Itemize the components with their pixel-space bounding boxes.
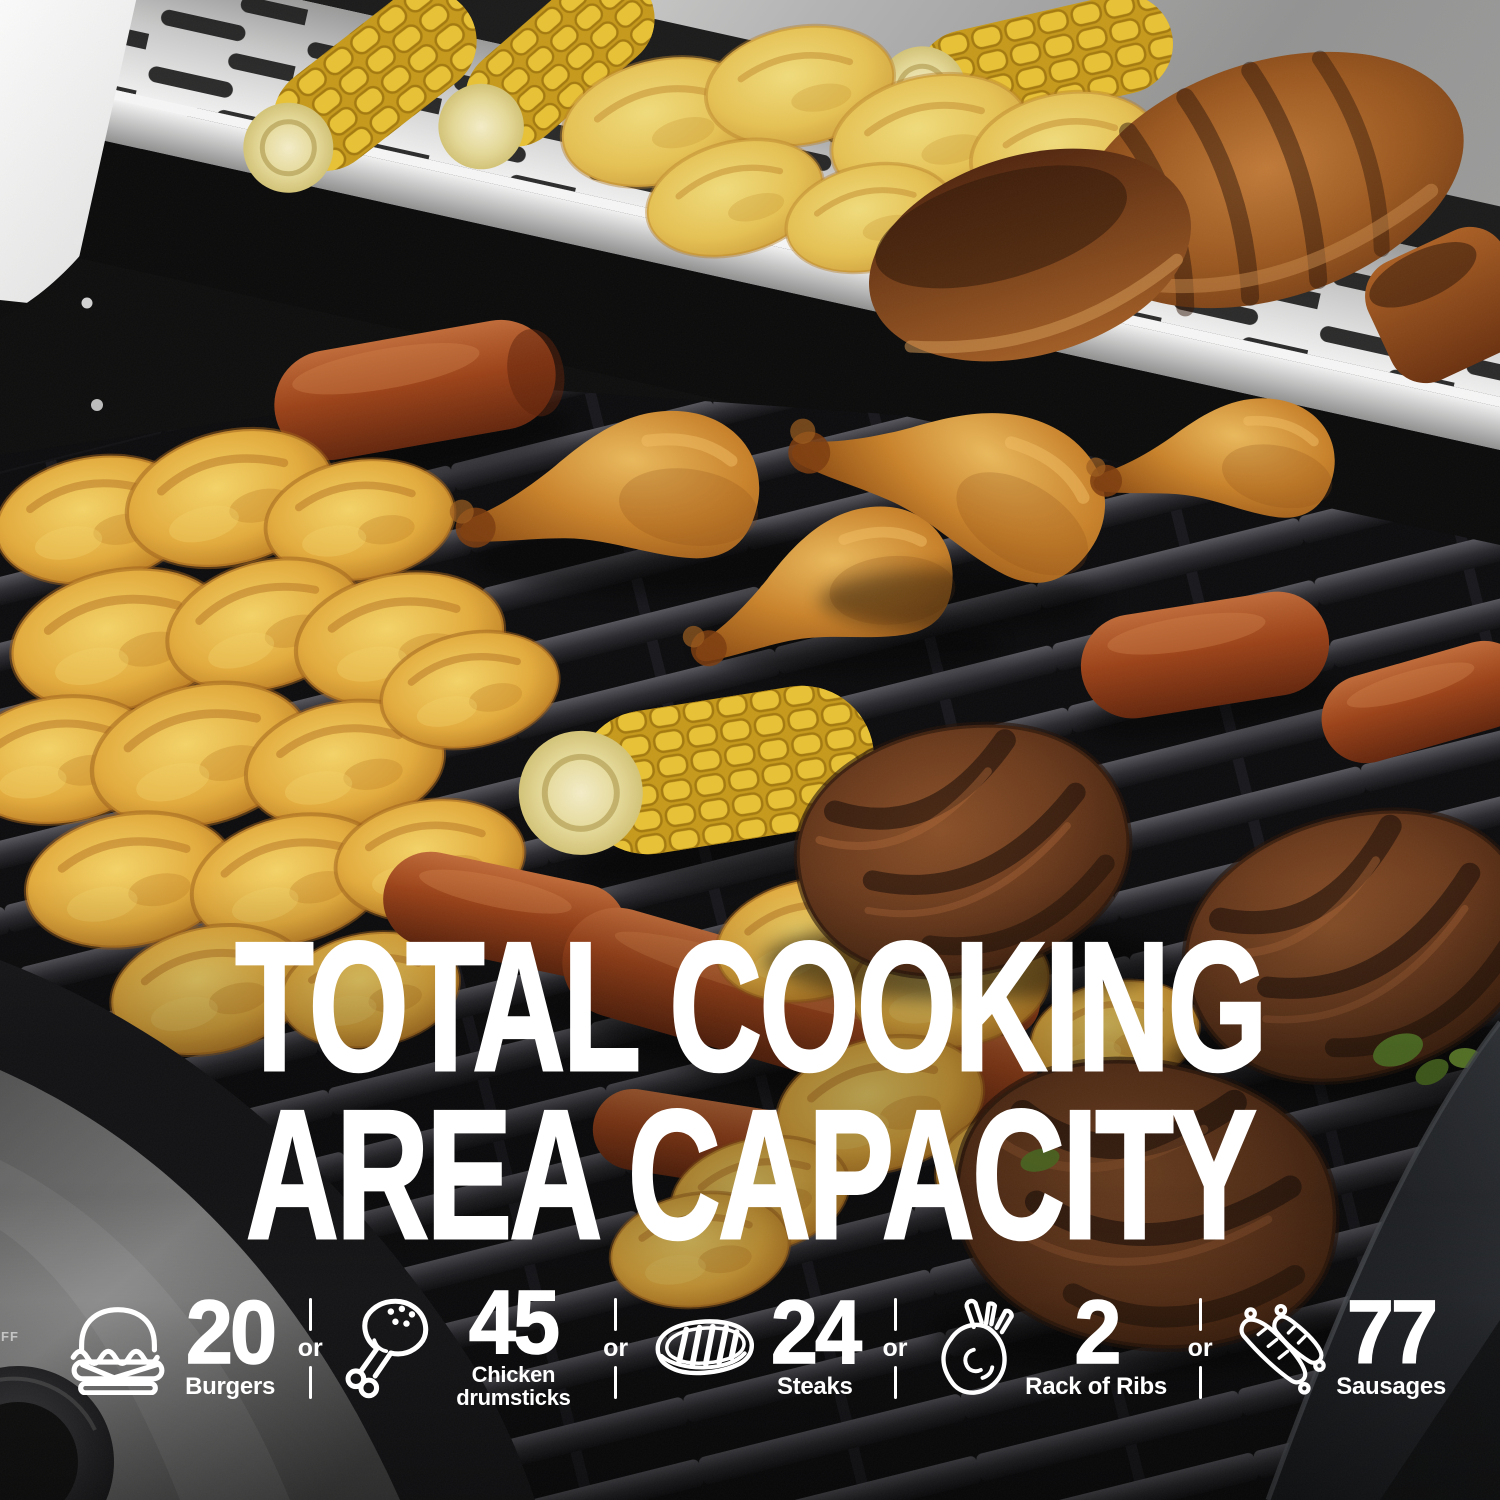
stat-value: 24 — [771, 1297, 859, 1371]
or-separator: or — [1188, 1298, 1213, 1399]
headline-line-2: AREA CAPACITY — [225, 1102, 1275, 1246]
product-infographic: FF TOTAL COOKING AREA CAPACITY 20 Burger… — [0, 0, 1500, 1500]
stat-text: 45 Chicken drumsticks — [444, 1287, 582, 1410]
drumstick-icon — [343, 1296, 435, 1399]
separator-line — [309, 1298, 312, 1331]
stat-sausages: 77 Sausages — [1233, 1297, 1446, 1399]
stat-burgers: 20 Burgers — [62, 1297, 277, 1399]
stat-text: 2 Rack of Ribs — [1025, 1297, 1167, 1399]
stat-value: 45 — [469, 1287, 557, 1361]
stat-value: 2 — [1074, 1297, 1118, 1371]
stat-steaks: 24 Steaks — [649, 1297, 862, 1399]
separator-text: or — [883, 1336, 908, 1361]
knob-panel-text: FF — [1, 1329, 19, 1344]
or-separator: or — [603, 1298, 628, 1399]
separator-line — [614, 1298, 617, 1331]
stat-value: 20 — [186, 1297, 274, 1371]
headline: TOTAL COOKING AREA CAPACITY — [0, 934, 1500, 1246]
or-separator: or — [883, 1298, 908, 1399]
stat-text: 77 Sausages — [1336, 1297, 1446, 1399]
separator-text: or — [298, 1336, 323, 1361]
separator-line — [1199, 1298, 1202, 1331]
sausages-icon — [1233, 1301, 1327, 1395]
stat-text: 24 Steaks — [768, 1297, 862, 1399]
separator-line — [894, 1298, 897, 1331]
separator-line — [894, 1366, 897, 1399]
burger-icon — [62, 1301, 174, 1395]
or-separator: or — [298, 1298, 323, 1399]
ribs-icon — [928, 1295, 1016, 1401]
headline-line-1: TOTAL COOKING — [225, 934, 1275, 1078]
separator-line — [614, 1366, 617, 1399]
stat-value: 77 — [1347, 1297, 1435, 1371]
capacity-stats-row: 20 Burgers or 45 — [62, 1286, 1446, 1410]
stat-ribs: 2 Rack of Ribs — [928, 1295, 1167, 1401]
steak-icon — [649, 1310, 759, 1386]
stat-text: 20 Burgers — [183, 1297, 277, 1399]
separator-text: or — [1188, 1336, 1213, 1361]
stat-drumsticks: 45 Chicken drumsticks — [343, 1287, 582, 1410]
separator-text: or — [603, 1336, 628, 1361]
separator-line — [1199, 1366, 1202, 1399]
separator-line — [309, 1366, 312, 1399]
